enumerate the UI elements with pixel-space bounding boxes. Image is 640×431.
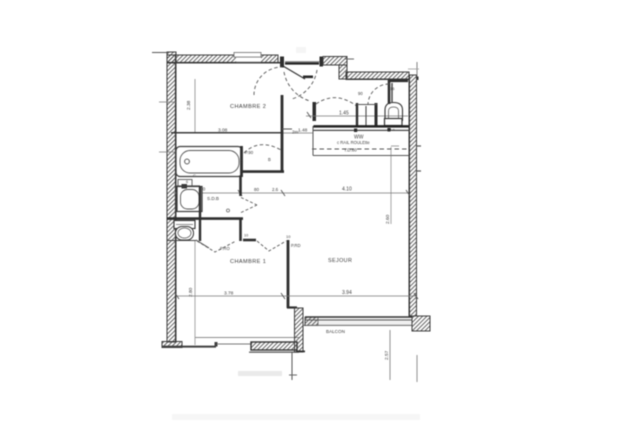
svg-text:CHAMBRE 2: CHAMBRE 2 [230, 104, 266, 110]
svg-text:2.80: 2.80 [188, 287, 194, 297]
svg-text:2.60: 2.60 [385, 214, 391, 224]
svg-text:1.45: 1.45 [339, 111, 349, 117]
svg-text:6: 6 [186, 180, 188, 184]
svg-text:2m: 2m [292, 130, 299, 135]
svg-text:S.D.B: S.D.B [207, 196, 219, 201]
svg-text:P.90: P.90 [245, 150, 254, 155]
svg-text:3.08: 3.08 [218, 128, 228, 134]
svg-text:T.D.60: T.D.60 [344, 148, 357, 153]
svg-text:90: 90 [358, 91, 363, 96]
svg-text:P.RO: P.RO [220, 246, 230, 251]
svg-text:SEJOUR: SEJOUR [328, 258, 352, 264]
svg-text:BALCON: BALCON [326, 329, 345, 334]
svg-text:2.38: 2.38 [186, 100, 192, 110]
svg-text:16: 16 [390, 86, 395, 91]
svg-text:C: C [240, 159, 243, 164]
svg-text:2.6: 2.6 [272, 187, 279, 192]
svg-text:4.10: 4.10 [342, 187, 352, 193]
svg-text:B: B [268, 157, 271, 162]
svg-text:P.RD: P.RD [291, 243, 300, 248]
svg-text:10: 10 [286, 234, 291, 239]
svg-text:3.78: 3.78 [224, 291, 234, 297]
svg-text:2.57: 2.57 [384, 350, 390, 360]
svg-text:c RAIL ROULEtte: c RAIL ROULEtte [337, 140, 370, 145]
svg-text:10: 10 [244, 234, 248, 238]
svg-text:3.94: 3.94 [342, 290, 352, 296]
svg-text:C: C [193, 173, 196, 178]
svg-text:CHAMBRE 1: CHAMBRE 1 [230, 259, 266, 265]
svg-text:80: 80 [254, 187, 259, 192]
svg-text:1.48: 1.48 [298, 128, 308, 134]
